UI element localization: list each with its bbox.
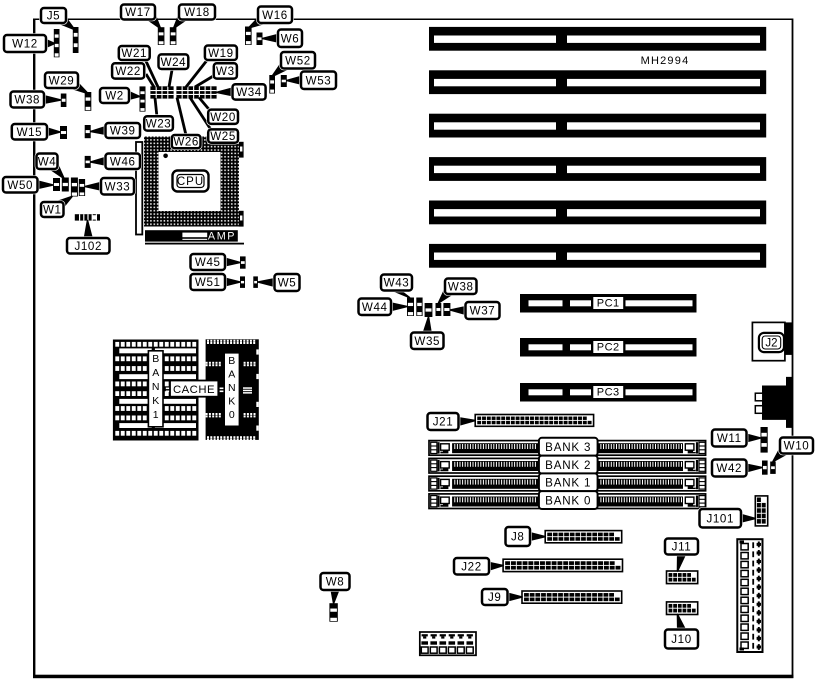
svg-text:W38: W38 bbox=[448, 280, 474, 293]
svg-text:W4: W4 bbox=[38, 155, 57, 168]
svg-text:W42: W42 bbox=[716, 462, 742, 475]
svg-text:W50: W50 bbox=[7, 179, 33, 192]
svg-text:J10: J10 bbox=[671, 633, 692, 646]
svg-text:W11: W11 bbox=[717, 432, 742, 445]
svg-text:PC2: PC2 bbox=[597, 342, 620, 354]
svg-text:W19: W19 bbox=[208, 47, 234, 60]
svg-text:J9: J9 bbox=[488, 591, 501, 604]
svg-text:W10: W10 bbox=[784, 440, 810, 453]
svg-text:W18: W18 bbox=[184, 6, 210, 19]
svg-text:W53: W53 bbox=[306, 74, 332, 87]
svg-text:W22: W22 bbox=[115, 65, 141, 78]
svg-text:W1: W1 bbox=[43, 204, 62, 217]
svg-text:W17: W17 bbox=[125, 6, 151, 19]
svg-text:W46: W46 bbox=[110, 155, 136, 168]
svg-text:W34: W34 bbox=[236, 86, 262, 99]
svg-text:W24: W24 bbox=[161, 56, 187, 69]
svg-text:MH2994: MH2994 bbox=[641, 55, 690, 67]
svg-text:J8: J8 bbox=[511, 531, 524, 544]
svg-text:W16: W16 bbox=[262, 9, 288, 22]
svg-text:J5: J5 bbox=[47, 10, 60, 23]
svg-text:W45: W45 bbox=[195, 256, 221, 269]
svg-text:W8: W8 bbox=[326, 576, 345, 589]
svg-text:J102: J102 bbox=[74, 240, 102, 253]
svg-text:W2: W2 bbox=[105, 90, 124, 103]
svg-text:W44: W44 bbox=[362, 301, 388, 314]
svg-text:W26: W26 bbox=[173, 136, 199, 149]
svg-text:W23: W23 bbox=[146, 117, 172, 130]
svg-text:PC3: PC3 bbox=[597, 387, 620, 399]
svg-text:W52: W52 bbox=[285, 54, 311, 67]
svg-text:W37: W37 bbox=[470, 305, 496, 318]
svg-text:W39: W39 bbox=[110, 125, 136, 138]
svg-text:BANK 2: BANK 2 bbox=[545, 459, 591, 472]
svg-text:J101: J101 bbox=[706, 512, 734, 525]
svg-text:CACHE: CACHE bbox=[173, 384, 215, 396]
svg-text:J11: J11 bbox=[672, 541, 692, 554]
svg-text:BANK 1: BANK 1 bbox=[545, 477, 591, 490]
svg-text:W38: W38 bbox=[14, 94, 40, 107]
svg-text:W21: W21 bbox=[121, 47, 147, 60]
svg-text:J22: J22 bbox=[461, 560, 482, 573]
svg-text:J2: J2 bbox=[765, 338, 777, 350]
svg-text:W51: W51 bbox=[195, 276, 221, 289]
svg-text:W25: W25 bbox=[210, 130, 236, 143]
svg-text:W33: W33 bbox=[105, 180, 131, 193]
svg-text:J21: J21 bbox=[433, 416, 454, 429]
svg-text:W6: W6 bbox=[281, 32, 300, 45]
svg-text:BANK0: BANK0 bbox=[228, 355, 236, 421]
svg-text:BANK 3: BANK 3 bbox=[545, 441, 591, 454]
svg-text:W43: W43 bbox=[384, 277, 410, 290]
svg-text:W35: W35 bbox=[414, 335, 440, 348]
svg-text:W15: W15 bbox=[17, 126, 43, 139]
svg-text:W20: W20 bbox=[210, 111, 236, 124]
svg-text:AMP: AMP bbox=[208, 230, 236, 242]
svg-text:BANK 0: BANK 0 bbox=[545, 494, 591, 507]
svg-text:CPU: CPU bbox=[177, 176, 204, 188]
svg-text:W3: W3 bbox=[216, 65, 235, 78]
svg-text:W12: W12 bbox=[12, 38, 38, 51]
svg-text:W29: W29 bbox=[49, 74, 75, 87]
svg-text:PC1: PC1 bbox=[597, 298, 620, 310]
svg-text:BANK1: BANK1 bbox=[152, 353, 160, 421]
svg-text:W5: W5 bbox=[278, 277, 297, 290]
